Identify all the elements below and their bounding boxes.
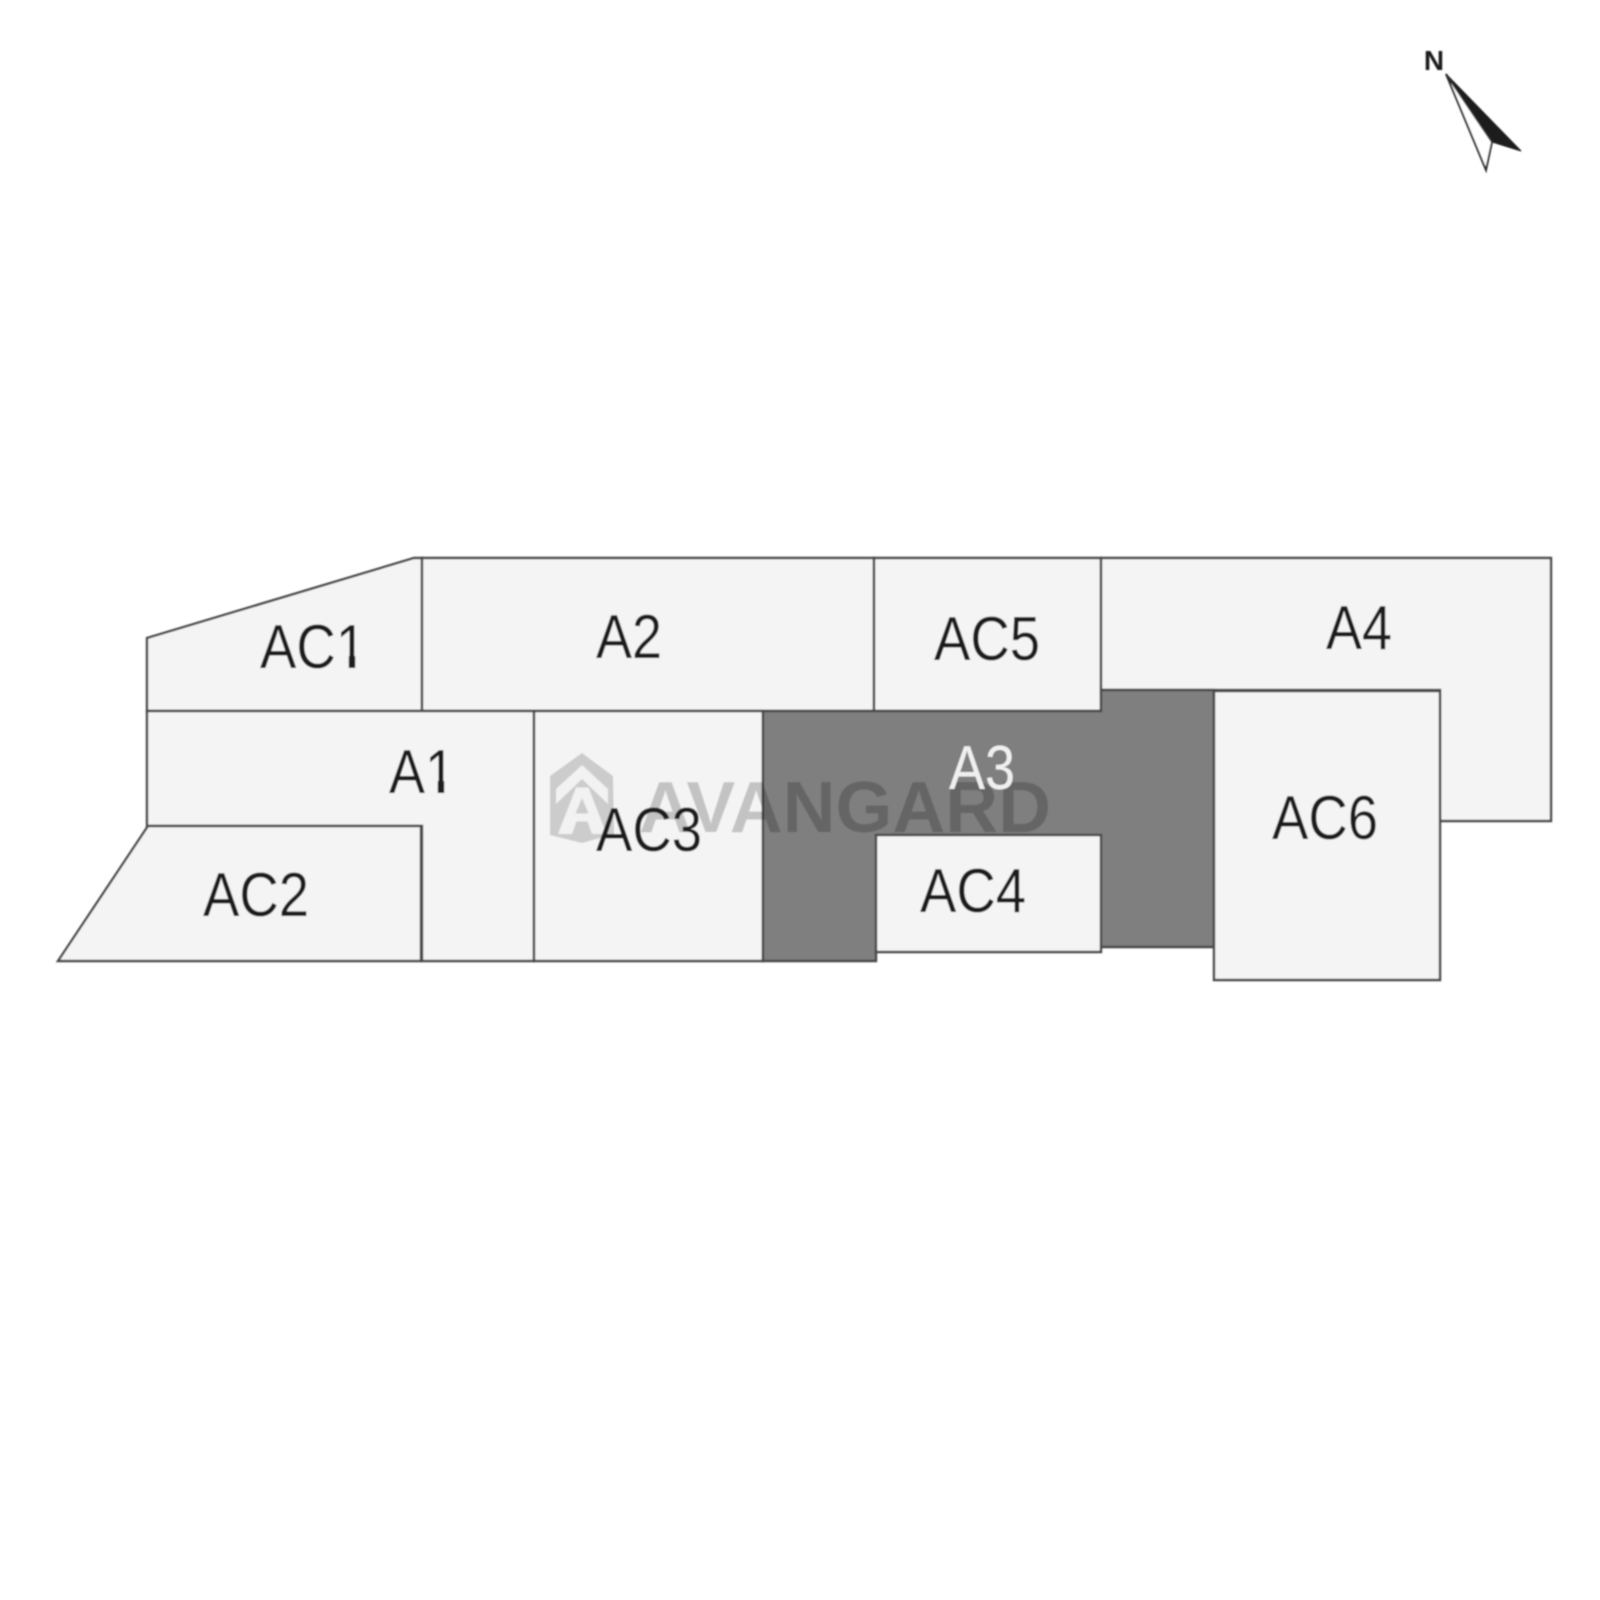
svg-text:A1: A1 bbox=[389, 738, 455, 807]
svg-text:A4: A4 bbox=[1326, 594, 1392, 663]
svg-text:AC1: AC1 bbox=[260, 613, 366, 682]
svg-text:AC6: AC6 bbox=[1272, 784, 1378, 853]
svg-text:AC3: AC3 bbox=[596, 796, 702, 865]
svg-text:A3: A3 bbox=[949, 734, 1015, 803]
svg-text:A2: A2 bbox=[596, 603, 662, 672]
svg-text:AC5: AC5 bbox=[934, 605, 1040, 674]
svg-text:AC4: AC4 bbox=[920, 857, 1026, 926]
svg-text:N: N bbox=[1424, 45, 1444, 76]
svg-text:AC2: AC2 bbox=[203, 861, 309, 930]
